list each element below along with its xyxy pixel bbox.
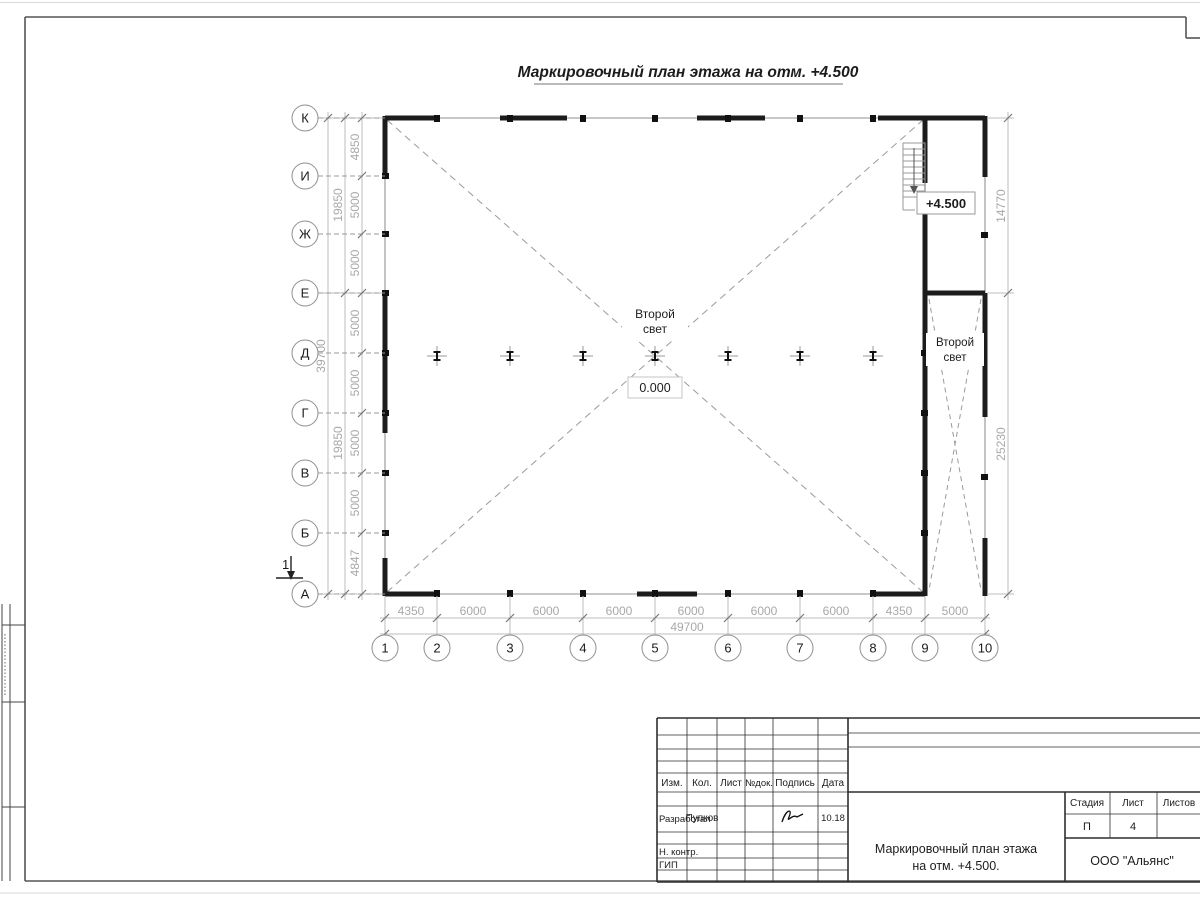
tb-stage-label: Стадия <box>1070 798 1104 809</box>
dim-bottom-0: 4350 <box>398 604 425 618</box>
row-axis-label-4: Д <box>301 346 310 361</box>
dim-bottom-1: 6000 <box>460 604 487 618</box>
dim-left-7: 4847 <box>348 549 362 576</box>
tb-developed-name: Пупков <box>686 813 719 824</box>
col-axis-label-5: 6 <box>724 641 731 656</box>
tb-gip-label: ГИП <box>659 860 678 871</box>
sheet-frame <box>0 3 1200 894</box>
left-dimension-lines <box>322 112 385 600</box>
dim-left-1: 5000 <box>348 191 362 218</box>
walls <box>385 116 985 596</box>
drawing-sheet: Маркировочный план этажа на отм. +4.500 <box>0 0 1200 900</box>
row-axis-label-6: В <box>301 466 310 481</box>
second-light-right-line1: Второй <box>936 337 974 349</box>
dim-bottom-7: 4350 <box>886 604 913 618</box>
dim-bottom-8: 5000 <box>942 604 969 618</box>
tb-sheets-label: Листов <box>1163 798 1196 809</box>
col-axis-label-9: 10 <box>978 641 992 656</box>
dim-left-0: 4850 <box>348 133 362 160</box>
interior-columns <box>427 346 883 366</box>
row-axis-label-1: И <box>300 169 309 184</box>
tb-col-kol: Кол. <box>692 778 712 789</box>
tb-doc-title-line2: на отм. +4.500. <box>912 859 999 873</box>
col-axis-label-2: 3 <box>506 641 513 656</box>
second-light-right-line2: свет <box>943 352 967 364</box>
tb-col-izm: Изм. <box>661 778 682 789</box>
dim-left-2: 5000 <box>348 249 362 276</box>
tb-ncontr-label: Н. контр. <box>659 847 698 858</box>
second-light-main-line2: свет <box>643 322 668 336</box>
section-mark: 1 <box>276 556 303 580</box>
col-axis-label-1: 2 <box>433 641 440 656</box>
tb-sheet-label: Лист <box>1122 798 1144 809</box>
dim-left-subtotal-0: 19850 <box>331 188 345 222</box>
row-axis-label-3: Е <box>301 286 310 301</box>
tb-company: ООО "Альянс" <box>1090 854 1174 868</box>
dim-bottom-4: 6000 <box>678 604 705 618</box>
dim-bottom-5: 6000 <box>751 604 778 618</box>
dim-left-3: 5000 <box>348 309 362 336</box>
tb-stage-value: П <box>1083 821 1091 833</box>
tb-col-podpis: Подпись <box>775 778 815 789</box>
col-axis-label-6: 7 <box>796 641 803 656</box>
col-axis-label-4: 5 <box>651 641 658 656</box>
dim-bottom-total: 49700 <box>670 620 704 634</box>
dim-left-4: 5000 <box>348 369 362 396</box>
tb-col-data: Дата <box>822 778 845 789</box>
second-light-main-line1: Второй <box>635 307 675 321</box>
dim-right-1: 25230 <box>994 427 1008 461</box>
dim-bottom-2: 6000 <box>533 604 560 618</box>
row-axis-label-7: Б <box>301 526 310 541</box>
tb-developed-date: 10.18 <box>821 813 845 824</box>
dim-left-subtotal-1: 19850 <box>331 426 345 460</box>
signature-icon <box>782 811 803 822</box>
tb-sheet-value: 4 <box>1130 821 1136 833</box>
col-axis-bubbles <box>372 635 998 661</box>
row-axis-label-8: А <box>301 587 310 602</box>
void-diagonals <box>387 120 981 592</box>
level-zero-label: 0.000 <box>639 381 670 395</box>
col-axis-label-0: 1 <box>381 641 388 656</box>
dim-bottom-6: 6000 <box>823 604 850 618</box>
col-axis-label-7: 8 <box>869 641 876 656</box>
wall-baselines <box>385 118 985 594</box>
level-upper-label: +4.500 <box>926 196 966 211</box>
tb-col-list: Лист <box>720 778 742 789</box>
col-axis-label-8: 9 <box>921 641 928 656</box>
drawing-title: Маркировочный план этажа на отм. +4.500 <box>518 64 859 81</box>
row-axis-label-5: Г <box>301 406 308 421</box>
col-axis-label-3: 4 <box>579 641 586 656</box>
tb-doc-title-line1: Маркировочный план этажа <box>875 842 1037 856</box>
section-mark-number: 1 <box>282 557 289 572</box>
dim-right-0: 14770 <box>994 189 1008 223</box>
right-dimension-lines <box>987 112 1014 600</box>
dim-left-6: 5000 <box>348 489 362 516</box>
row-axis-label-0: К <box>301 111 309 126</box>
frame-left-strip <box>2 604 25 881</box>
wall-column-marks <box>382 115 988 597</box>
dim-left-5: 5000 <box>348 429 362 456</box>
drawing-canvas: Маркировочный план этажа на отм. +4.500 <box>0 0 1200 900</box>
row-axis-label-2: Ж <box>299 227 311 242</box>
dim-bottom-3: 6000 <box>606 604 633 618</box>
tb-col-ndok: №док. <box>745 778 773 789</box>
